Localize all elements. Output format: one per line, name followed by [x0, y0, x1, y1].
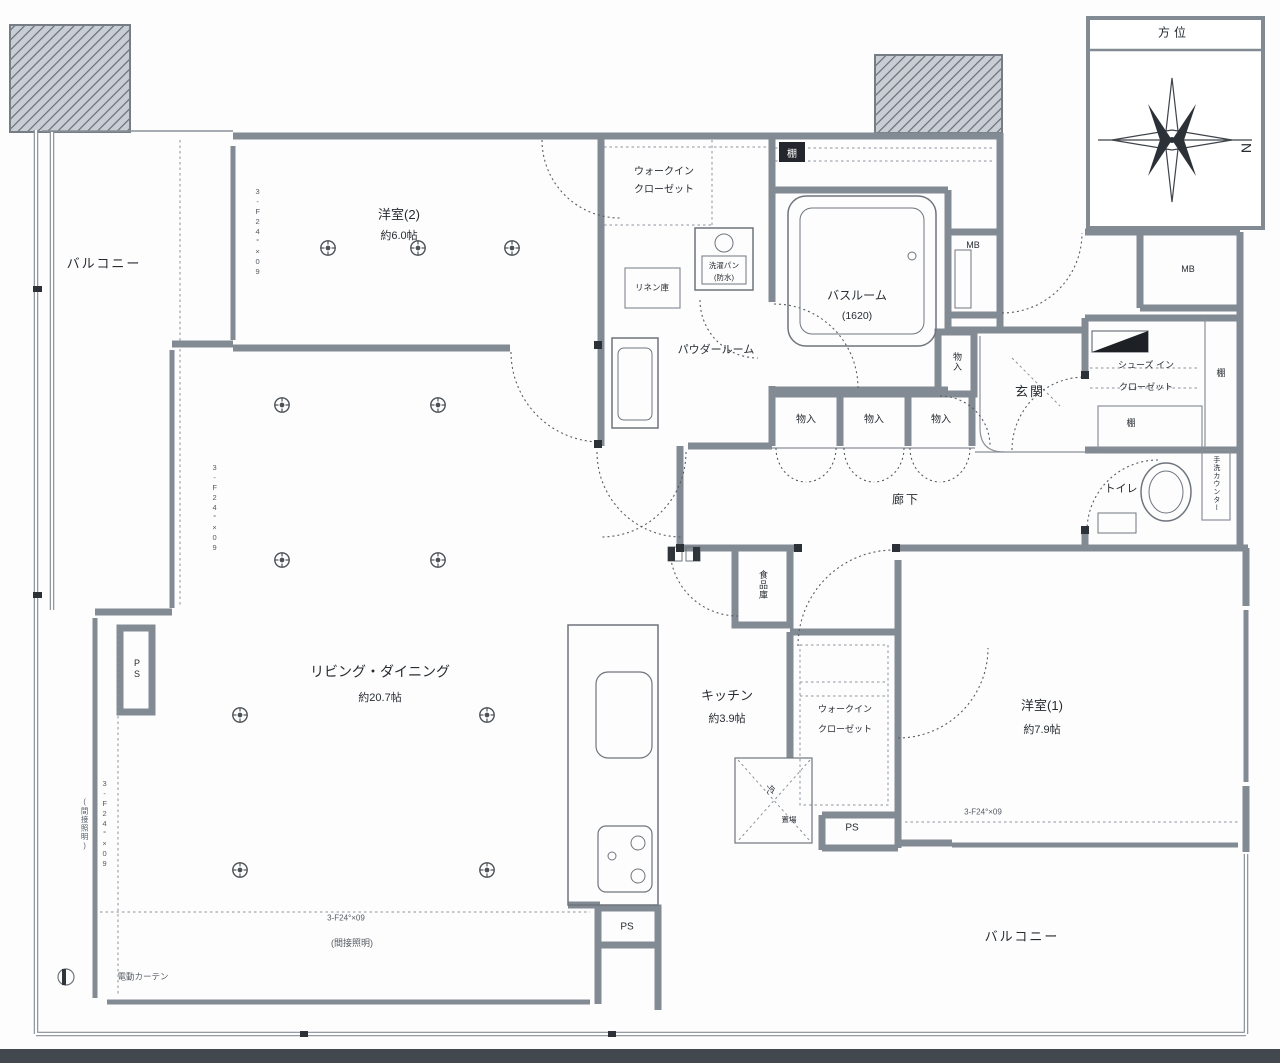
room-size-living: 約20.7帖: [358, 692, 401, 704]
label-mb-2: MB: [1181, 265, 1195, 275]
annotation-sash-bottom: 3-F24°×09: [327, 915, 365, 924]
room-label-powder: パウダールーム: [678, 344, 755, 356]
label-fridge: 冷: [766, 786, 775, 796]
label-mb-1: MB: [966, 241, 980, 251]
label-ps-bottom: PS: [620, 922, 633, 933]
room-label-bath: バスルーム: [827, 289, 887, 302]
toilet-icon: [1098, 463, 1191, 533]
room-label-balcony-left: バルコニー: [67, 257, 142, 271]
label-storage-vertical: 物入: [951, 352, 961, 372]
label-storage-2: 物入: [864, 415, 884, 426]
room-label-corridor: 廊下: [892, 493, 920, 506]
compass: [1088, 18, 1263, 228]
ceiling-lights: [233, 241, 519, 877]
windows: [95, 146, 1246, 1002]
room-label-wic2-line2: クローゼット: [818, 725, 872, 735]
room-label-pantry: 食品庫: [757, 570, 767, 600]
structure-block-topright: [875, 55, 1002, 133]
scan-edge-band: [0, 1049, 1280, 1063]
compass-title: 方位: [1158, 26, 1190, 39]
kitchen-counter-icon: [568, 625, 658, 905]
label-ps-mid: PS: [845, 823, 858, 834]
room-size-western2: 約6.0帖: [380, 230, 417, 242]
room-size-bath: (1620): [842, 311, 872, 323]
annotation-sash-left1: 3-F24°×09: [253, 187, 261, 277]
floor-plan-drawing: [0, 0, 1280, 1063]
fixtures: [58, 196, 1191, 985]
room-label-sic-line1: シューズ イン: [1118, 361, 1174, 371]
bathtub-icon: [788, 196, 936, 346]
structure-block-topleft: [10, 25, 130, 132]
annotation-electric-curtain: 電動カーテン: [117, 972, 168, 981]
room-label-toilet: トイレ: [1105, 483, 1138, 495]
vanity-icon: [612, 338, 658, 428]
annotation-indirect-lighting: (間接照明): [331, 939, 373, 949]
label-shelf-sic: 棚: [1126, 419, 1135, 429]
annotation-indirect-left: (間接照明): [80, 797, 88, 851]
label-handwash-counter: 手洗カウンター: [1212, 456, 1220, 512]
annotation-sash-room1: 3-F24°×09: [964, 809, 1002, 818]
room-label-kitchen: キッチン: [701, 689, 753, 703]
room-label-balcony-bottom: バルコニー: [985, 930, 1060, 944]
room-label-living: リビング・ダイニング: [310, 664, 450, 679]
walls: [95, 133, 1248, 1010]
shelf-pillar: 棚: [779, 142, 805, 162]
floor-plan: 方位 N バルコニー バルコニー 洋室(2) 約6.0帖 リビング・ダイニング …: [0, 0, 1280, 1063]
room-label-western2: 洋室(2): [378, 208, 420, 222]
room-size-kitchen: 約3.9帖: [708, 713, 745, 725]
annotation-sash-left2: 3-F24°×09: [210, 463, 218, 553]
label-storage-1: 物入: [796, 415, 816, 426]
room-label-wic2-line1: ウォークイン: [818, 705, 872, 715]
wall-junctions: [33, 286, 1089, 1037]
label-storage-3: 物入: [931, 415, 951, 426]
label-fridge-place: 置場: [782, 816, 797, 824]
room-size-western1: 約7.9帖: [1023, 724, 1060, 736]
room-label-sic-line2: クローゼット: [1119, 383, 1173, 393]
room-label-western1: 洋室(1): [1021, 699, 1063, 713]
label-laundry-line2: (防水): [714, 274, 734, 282]
mb-duct-icon: [955, 250, 971, 308]
label-shelf-right: 棚: [1216, 369, 1225, 379]
room-label-linen: リネン庫: [635, 283, 669, 292]
balcony-rails: [36, 130, 1246, 1034]
annotation-sash-left3: 3-F24°×09: [100, 779, 108, 869]
shoe-shelf-icon: [1092, 331, 1148, 352]
room-label-wic1-line2: クローゼット: [634, 185, 694, 196]
electric-curtain-icon: [58, 969, 74, 985]
door-arcs: [511, 140, 1158, 738]
north-label: N: [1238, 143, 1253, 153]
room-label-wic1-line1: ウォークイン: [634, 167, 694, 178]
label-ps-left: PS: [131, 658, 141, 680]
label-laundry-line1: 洗濯パン: [709, 262, 739, 270]
room-label-genkan: 玄関: [1015, 385, 1045, 399]
